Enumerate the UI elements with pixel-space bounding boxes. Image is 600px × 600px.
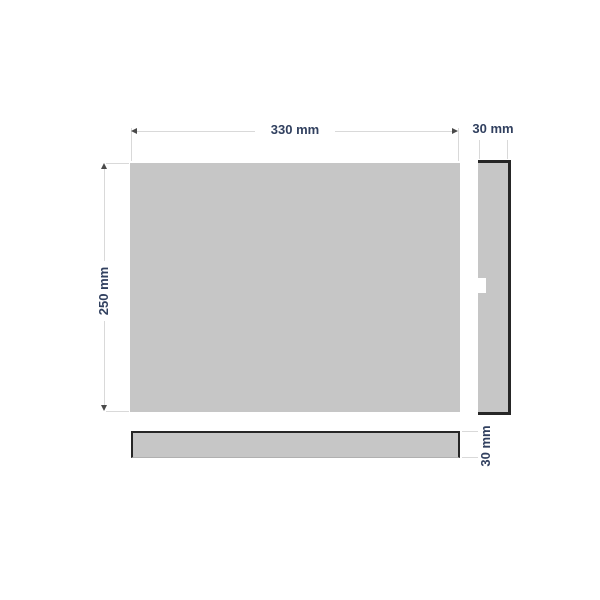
width-dimension-label: 330 mm	[255, 122, 335, 138]
side-thickness-dimension-label: 30 mm	[463, 121, 523, 137]
dim-arrow	[101, 163, 107, 169]
groove-notch	[471, 278, 486, 293]
dim-arrow	[452, 128, 458, 134]
front-view-panel	[130, 163, 460, 412]
height-dimension-label: 250 mm	[96, 261, 112, 321]
dim-extension-line	[458, 128, 459, 161]
dim-arrow	[101, 405, 107, 411]
top-view-panel	[131, 431, 460, 458]
top-thickness-dimension-label: 30 mm	[478, 424, 494, 468]
dim-extension-line	[479, 140, 480, 159]
dim-extension-line	[106, 163, 129, 164]
dim-arrow	[131, 128, 137, 134]
dim-extension-line	[106, 411, 129, 412]
technical-drawing-canvas: 330 mm 250 mm 30 mm 30 mm	[0, 0, 600, 600]
dim-extension-line	[507, 140, 508, 159]
